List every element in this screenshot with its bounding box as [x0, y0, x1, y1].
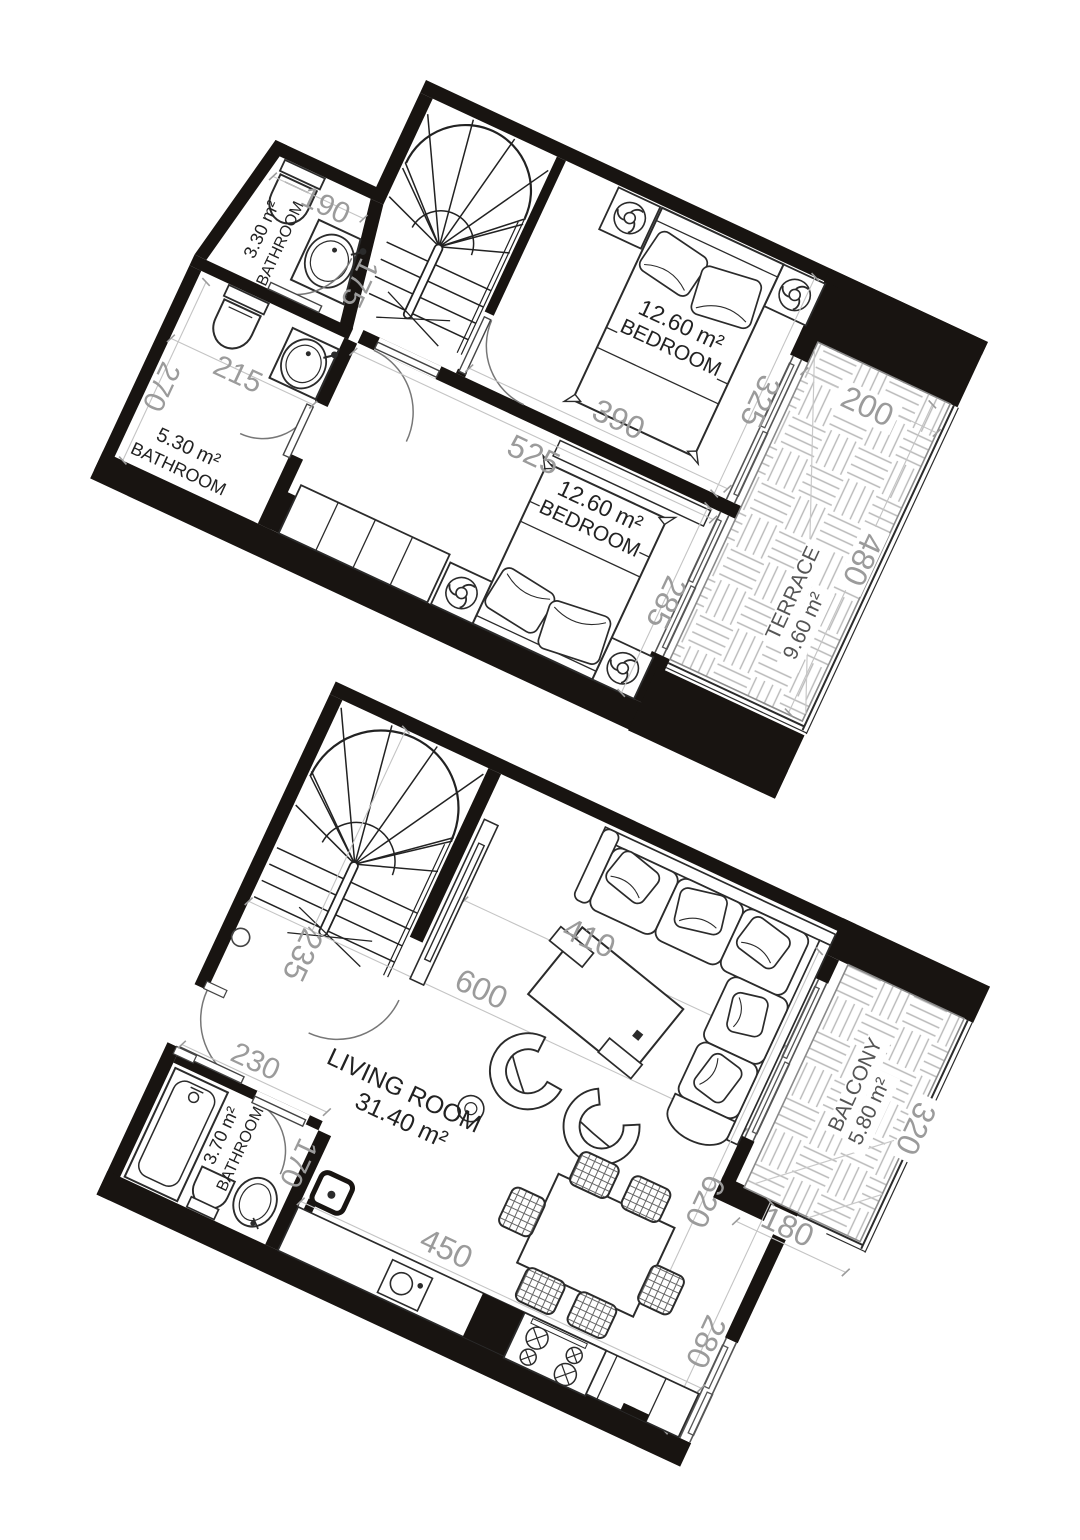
svg-text:215: 215 [208, 349, 267, 400]
svg-text:600: 600 [450, 961, 514, 1016]
